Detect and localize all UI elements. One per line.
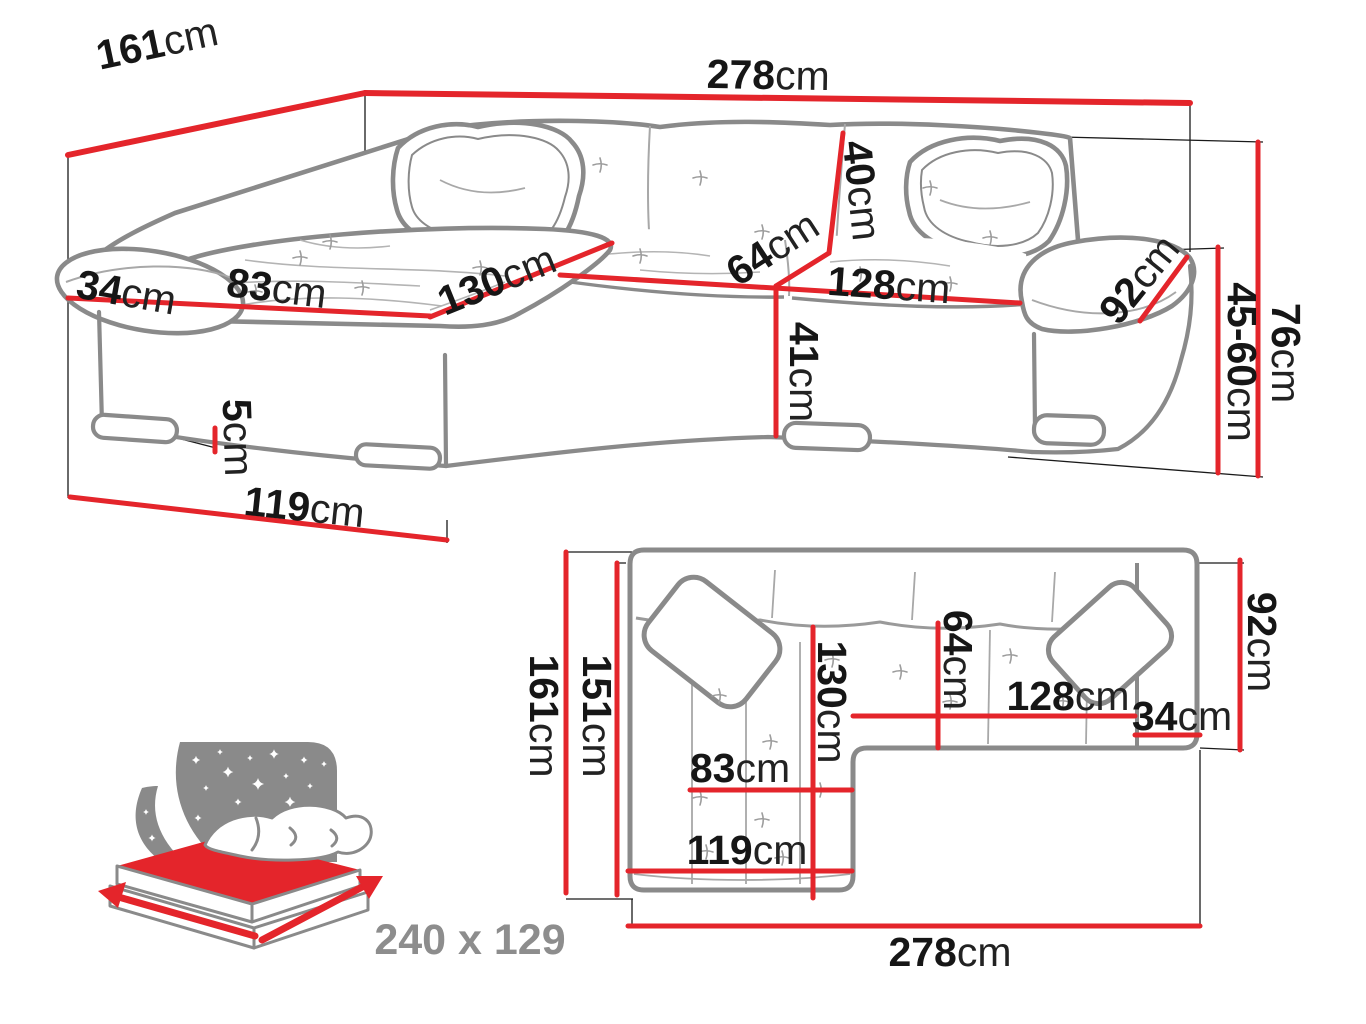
sofa-leg xyxy=(92,414,177,443)
guide-height-top xyxy=(1062,137,1263,142)
sofa-leg xyxy=(1034,415,1105,445)
dim-label-plan-119cm: 119cm xyxy=(687,827,808,873)
dim-label-plan-128cm: 128cm xyxy=(1006,673,1129,719)
dim-label-plan-34cm: 34cm xyxy=(1132,693,1232,739)
dim-label-119cm: 119cm xyxy=(242,478,367,536)
sleeping-area-icon xyxy=(98,742,383,948)
sofa-leg xyxy=(784,423,871,451)
guide-plan-92-bottom xyxy=(1200,748,1244,750)
dim-label-plan-130cm: 130cm xyxy=(809,640,855,763)
sofa-dimension-diagram: 161cm 278cm 34cm 83cm 130cm 64cm 40cm 12… xyxy=(0,0,1366,1024)
base-armrest-front-edge xyxy=(1034,334,1035,430)
dim-label-plan-151cm: 151cm xyxy=(574,654,620,777)
dim-label-plan-161cm: 161cm xyxy=(521,654,567,777)
sofa-perspective-drawing xyxy=(0,0,1194,469)
dim-label-161cm: 161cm xyxy=(92,8,222,79)
dim-label-45-60cm: 45-60cm xyxy=(1219,282,1265,442)
dim-label-plan-64cm: 64cm xyxy=(935,610,981,710)
dim-line-161 xyxy=(68,93,365,155)
base-front-bottom xyxy=(446,437,1032,466)
guide-bottom xyxy=(1008,457,1263,477)
dim-label-plan-278cm: 278cm xyxy=(888,929,1011,975)
sofa-leg xyxy=(355,444,440,469)
dim-label-278cm: 278cm xyxy=(706,51,830,99)
dim-label-5cm: 5cm xyxy=(214,398,263,477)
dim-label-plan-83cm: 83cm xyxy=(690,745,790,791)
base-left-edge xyxy=(99,312,102,424)
dim-label-plan-92cm: 92cm xyxy=(1239,592,1285,692)
sleeping-area-size-label: 240 x 129 xyxy=(374,916,565,964)
dim-label-41cm: 41cm xyxy=(781,322,827,422)
dim-label-128cm: 128cm xyxy=(826,258,952,312)
diagram-canvas: 161cm 278cm 34cm 83cm 130cm 64cm 40cm 12… xyxy=(0,0,1366,1024)
base-chaise-right-edge xyxy=(445,355,446,466)
dim-label-76cm: 76cm xyxy=(1263,303,1309,403)
